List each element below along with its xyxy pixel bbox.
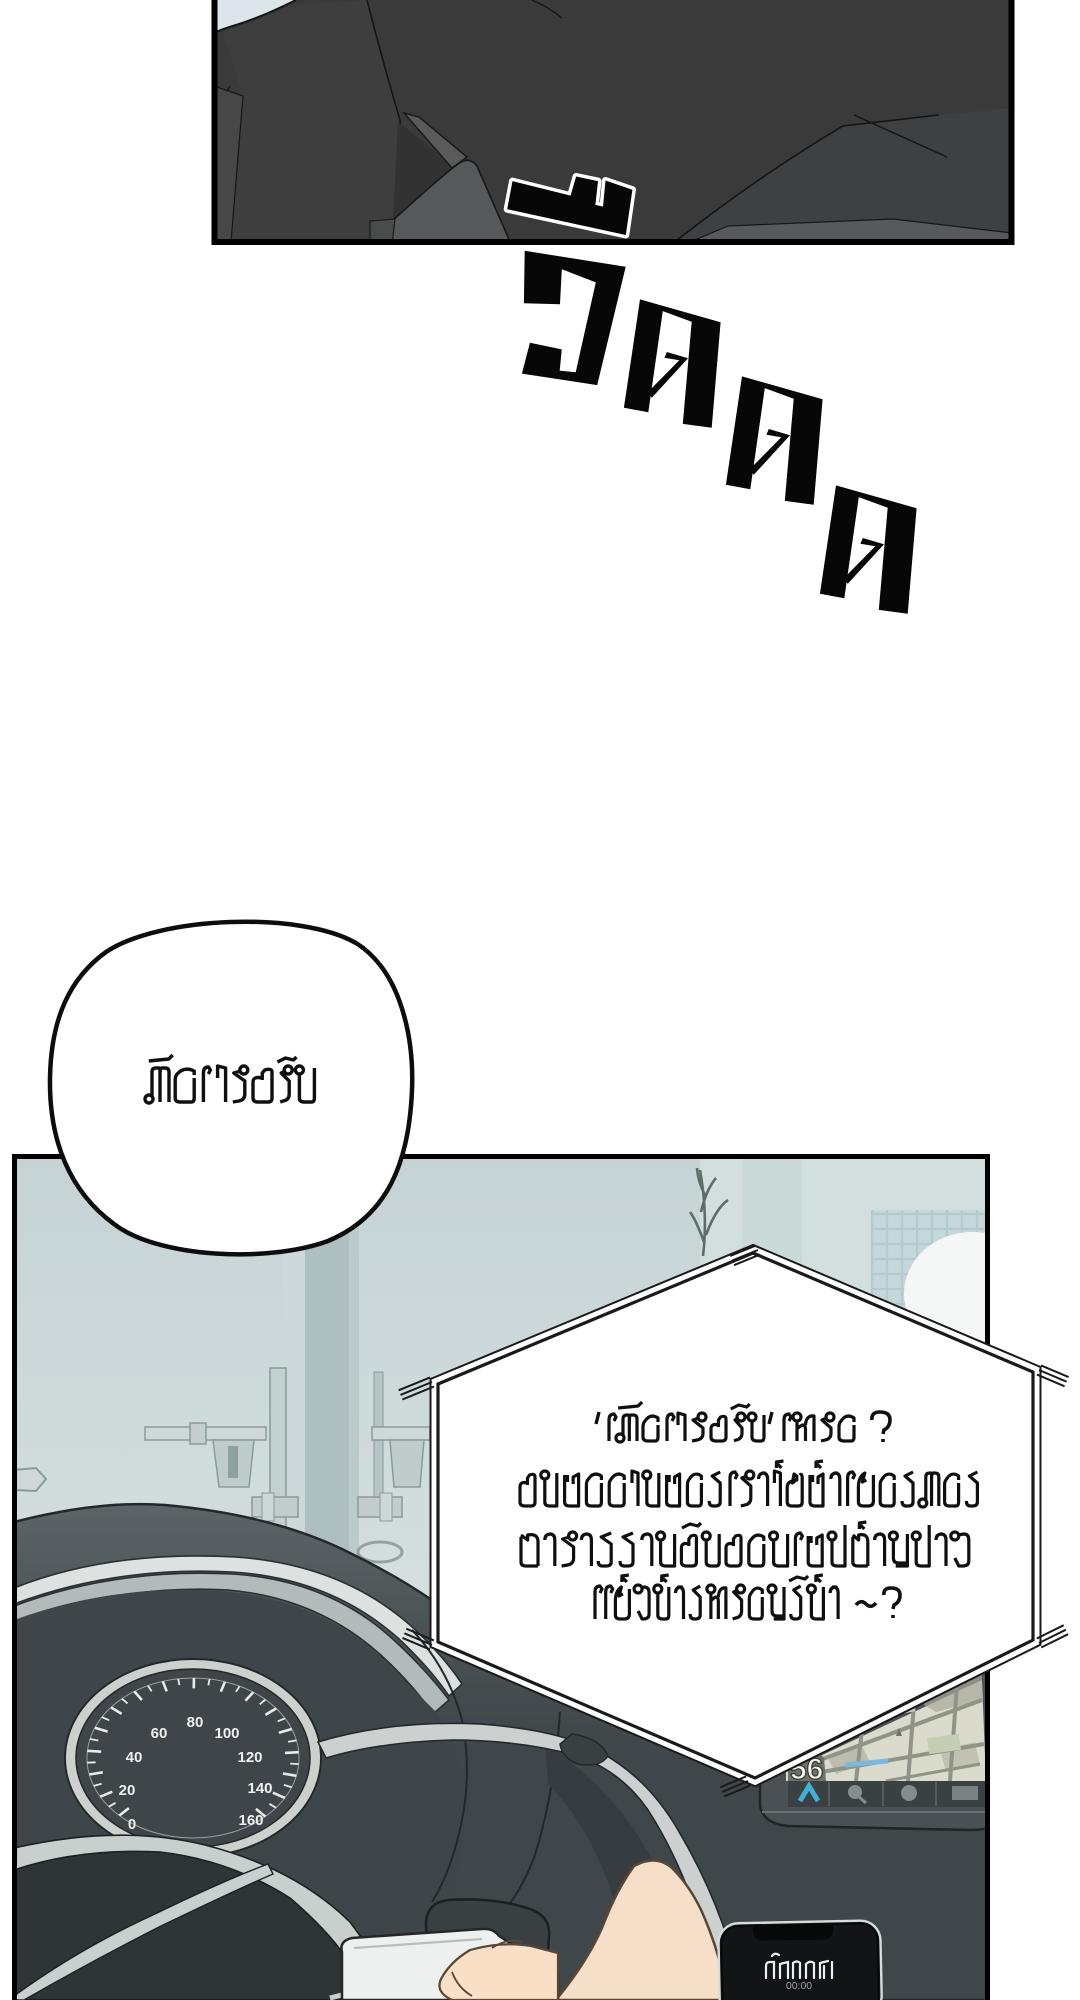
- svg-text:20: 20: [119, 1782, 136, 1799]
- svg-text:120: 120: [237, 1749, 262, 1766]
- svg-text:0: 0: [128, 1816, 136, 1833]
- svg-text:140: 140: [247, 1780, 272, 1797]
- svg-text:80: 80: [187, 1714, 204, 1731]
- svg-text:60: 60: [151, 1725, 168, 1742]
- svg-text:100: 100: [214, 1725, 239, 1742]
- svg-text:00:00: 00:00: [786, 1980, 812, 1992]
- svg-text:40: 40: [126, 1749, 143, 1766]
- svg-text:160: 160: [238, 1812, 263, 1829]
